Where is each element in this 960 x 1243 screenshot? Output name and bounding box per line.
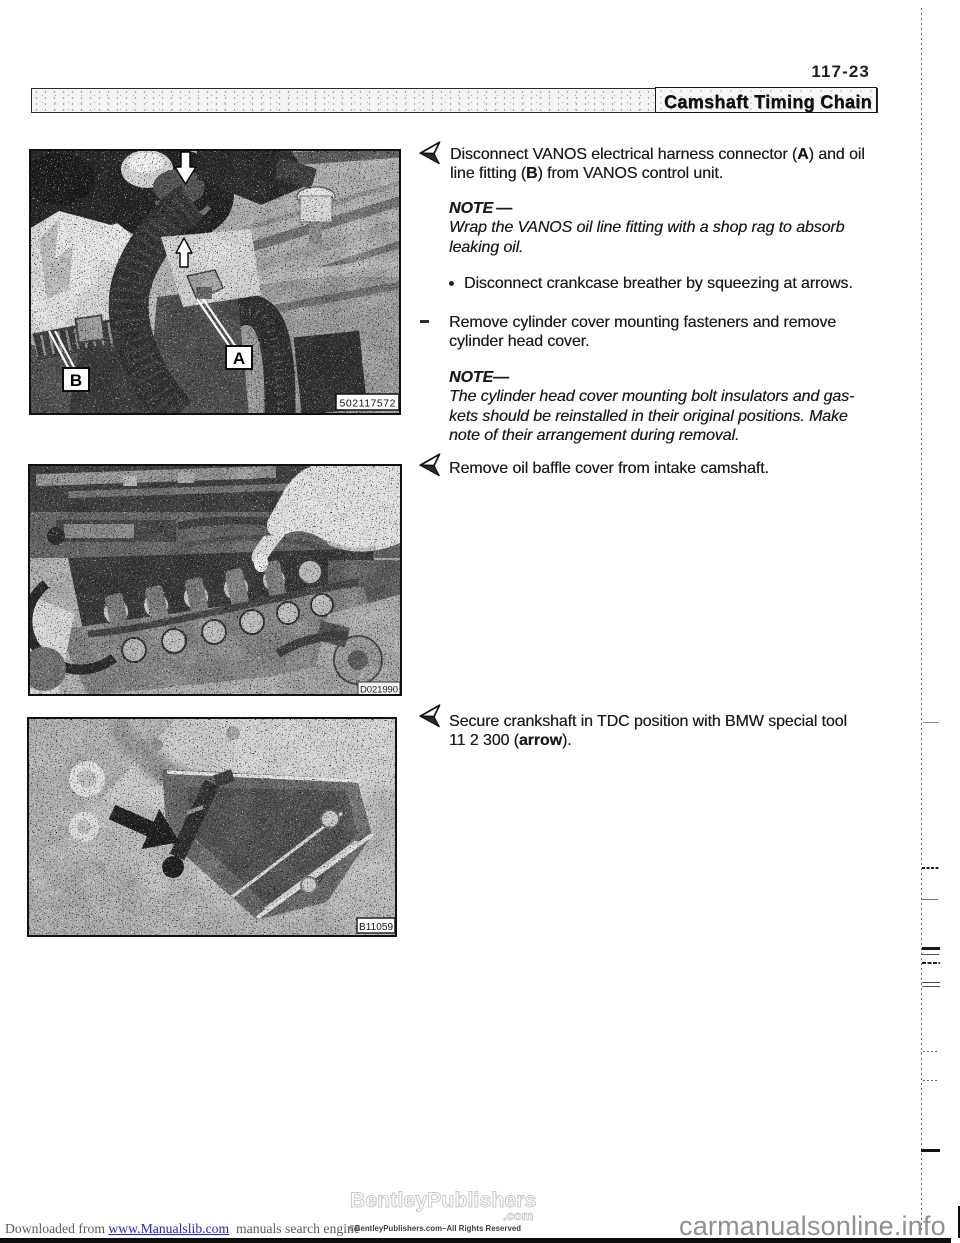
svg-text:B: B [70, 371, 82, 390]
svg-text:A: A [233, 349, 245, 368]
svg-text:D021990: D021990 [360, 685, 398, 696]
svg-text:B11059: B11059 [359, 922, 393, 933]
svg-text:502117572: 502117572 [340, 398, 396, 410]
